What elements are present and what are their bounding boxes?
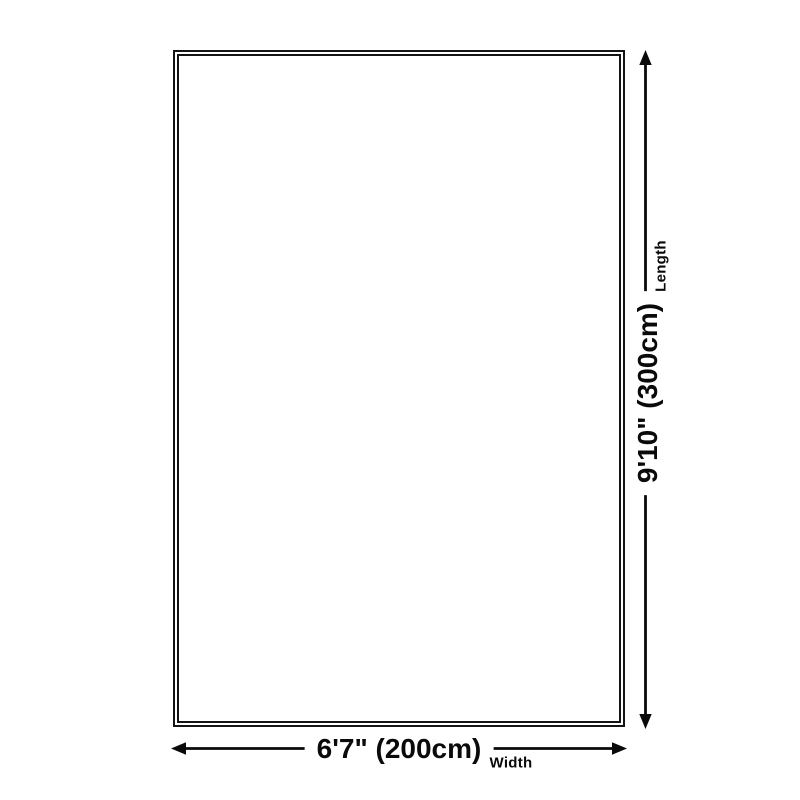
length-axis-label: Length — [654, 240, 669, 292]
width-axis-label: Width — [489, 756, 532, 771]
width-value-label: 6'7" (200cm) — [305, 732, 494, 766]
rug-outline — [173, 50, 625, 727]
arrow-up-icon — [639, 50, 651, 65]
arrow-right-icon — [612, 742, 627, 754]
arrow-left-icon — [171, 742, 186, 754]
rug-outline-inner-border — [177, 54, 621, 723]
dimension-diagram: 9'10" (300cm) Length 6'7" (200cm) Width — [0, 0, 800, 800]
arrow-down-icon — [639, 714, 651, 729]
length-value-label: 9'10" (300cm) — [631, 291, 665, 495]
